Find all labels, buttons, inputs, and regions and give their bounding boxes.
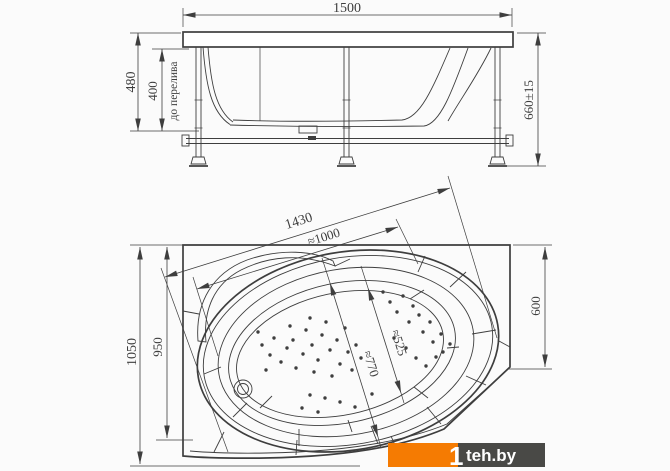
- dim-basin-width-label: ≈525: [388, 328, 410, 358]
- dim-height-label: 480: [124, 72, 139, 93]
- dim-inner-depth-label: 950: [150, 337, 165, 357]
- drawing-canvas: 1500 480 400 до перелива 660±15: [0, 0, 670, 471]
- watermark-site-label: teh.by: [466, 446, 517, 465]
- plan-tub-rim: [181, 227, 515, 471]
- side-view: 1500 480 400 до перелива 660±15: [124, 1, 546, 166]
- dim-overflow-label: 400: [145, 81, 160, 101]
- plan-view: 1430 ≈1000 1050 950 600 ≈525: [125, 176, 552, 471]
- overflow-note-label: до перелива: [168, 62, 180, 121]
- rim-seams: [183, 256, 510, 455]
- watermark-logo-mark: 1: [449, 441, 463, 471]
- plan-dimensions: 1430 ≈1000 1050 950 600 ≈525: [125, 176, 552, 466]
- dim-width-label: 1500: [333, 1, 361, 16]
- side-tub-profile: [203, 47, 491, 140]
- dim-basin-length-label: ≈770: [360, 349, 382, 379]
- watermark: 1 teh.by: [388, 441, 545, 471]
- dim-total-height-label: 660±15: [521, 80, 536, 120]
- watermark-orange-block: [388, 443, 458, 467]
- bathtub-technical-drawing: 1500 480 400 до перелива 660±15: [0, 0, 670, 471]
- dim-diagonal-length-label: 1430: [283, 210, 314, 233]
- side-frame: [182, 47, 513, 166]
- side-dimensions: 1500 480 400 до перелива 660±15: [124, 1, 546, 166]
- dim-depth-label: 1050: [125, 338, 140, 366]
- dim-right-width-label: 600: [528, 296, 543, 316]
- side-rim-bar: [183, 32, 513, 47]
